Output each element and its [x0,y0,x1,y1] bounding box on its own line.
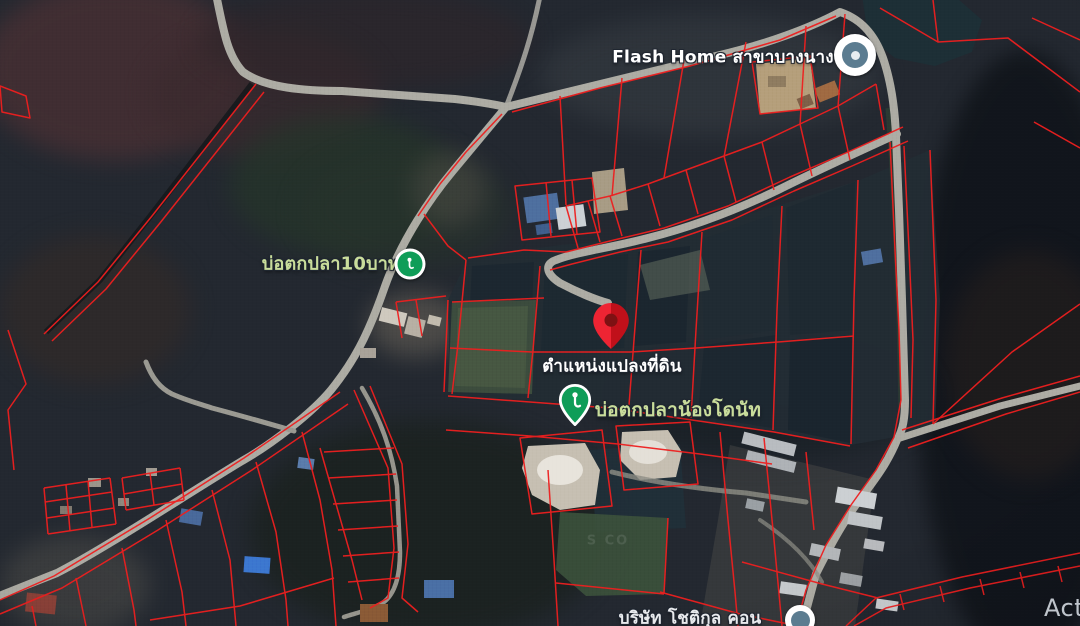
poi-label: ตำแหน่งแปลงที่ดิน [542,357,681,377]
satellite-map-canvas[interactable]: Flash Home สาขาบางนาง บ่อตกปลา10บาท [0,0,1080,626]
poi-label: บ่อตกปลา10บาท [262,254,400,275]
red-map-pin-icon[interactable] [593,303,629,349]
faint-watermark: S CO [587,534,629,549]
poi-label: บริษัท โชติกุล คอน [619,609,762,626]
poi-label: บ่อตกปลาน้องโดนัท [595,399,761,421]
fishing-poi-circle-icon[interactable] [395,249,426,280]
poi-company[interactable]: บริษัท โชติกุล คอน [619,605,762,626]
land-parcel-pin-label: ตำแหน่งแปลงที่ดิน [542,353,681,380]
fishing-poi-teardrop-icon[interactable] [558,384,592,426]
poi-flash-home[interactable]: Flash Home สาขาบางนาง [612,44,834,71]
store-poi-circle-icon[interactable] [834,34,876,76]
store-icon-dot [842,42,868,68]
satellite-imagery [0,0,1080,626]
poi-fishing-pond-donut[interactable]: บ่อตกปลาน้องโดนัท [595,395,761,425]
corner-watermark-text: Act [1044,594,1080,622]
company-icon-dot [791,611,810,626]
poi-fishing-pond-10baht[interactable]: บ่อตกปลา10บาท [262,249,400,278]
fishing-icon-glyph [398,252,423,277]
poi-label: Flash Home สาขาบางนาง [612,48,834,68]
